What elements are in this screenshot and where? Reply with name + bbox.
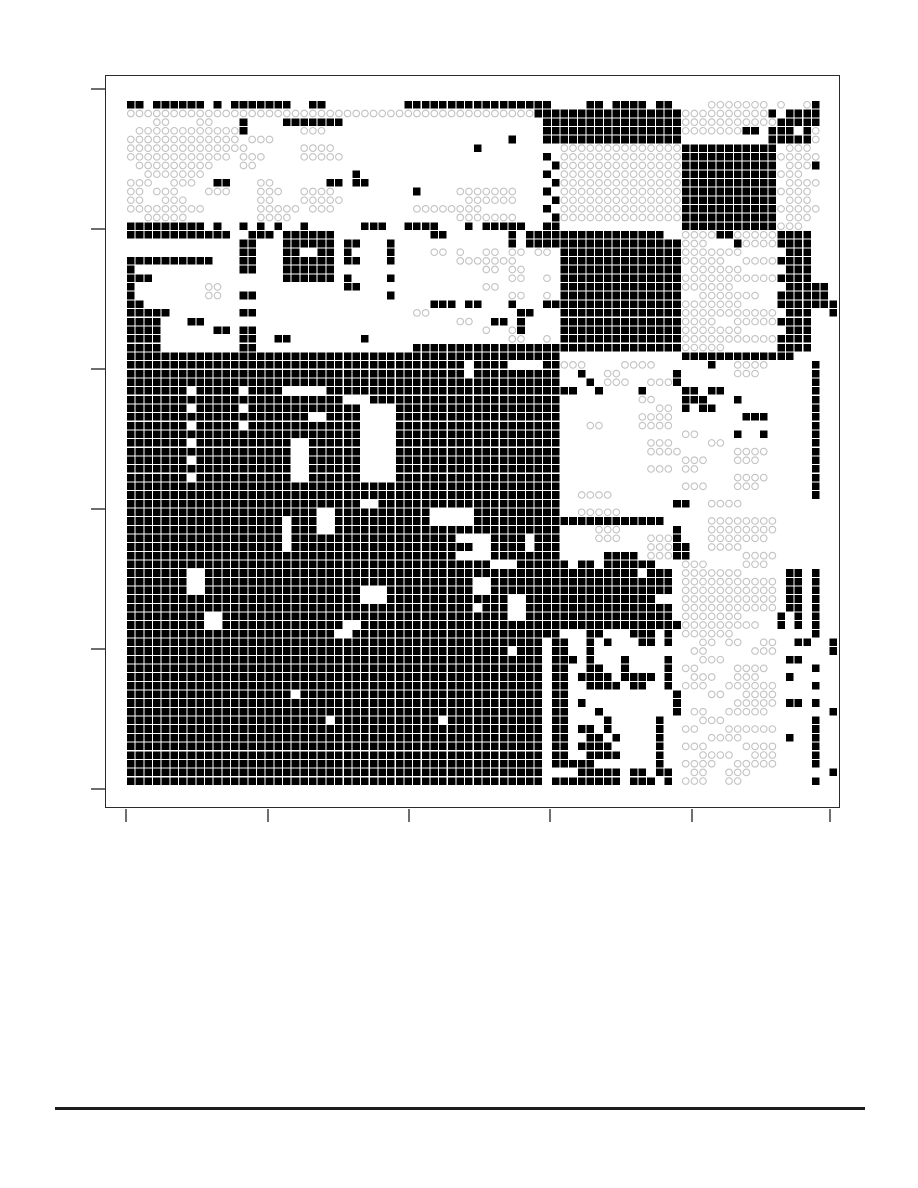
y-axis-tick [91, 228, 105, 230]
matrix-plot-frame [105, 75, 840, 808]
matrix-heatmap [106, 76, 839, 807]
y-axis-tick [91, 648, 105, 650]
y-axis-tick [91, 368, 105, 370]
footer-rule [55, 1107, 865, 1110]
x-axis-tick [125, 809, 127, 822]
x-axis-tick [267, 809, 269, 822]
x-axis-tick [691, 809, 693, 822]
y-axis-tick [91, 88, 105, 90]
x-axis-tick [549, 809, 551, 822]
x-axis-tick [829, 809, 831, 822]
y-axis-tick [91, 508, 105, 510]
x-axis-tick [408, 809, 410, 822]
y-axis-tick [91, 788, 105, 790]
document-page [0, 0, 918, 1188]
